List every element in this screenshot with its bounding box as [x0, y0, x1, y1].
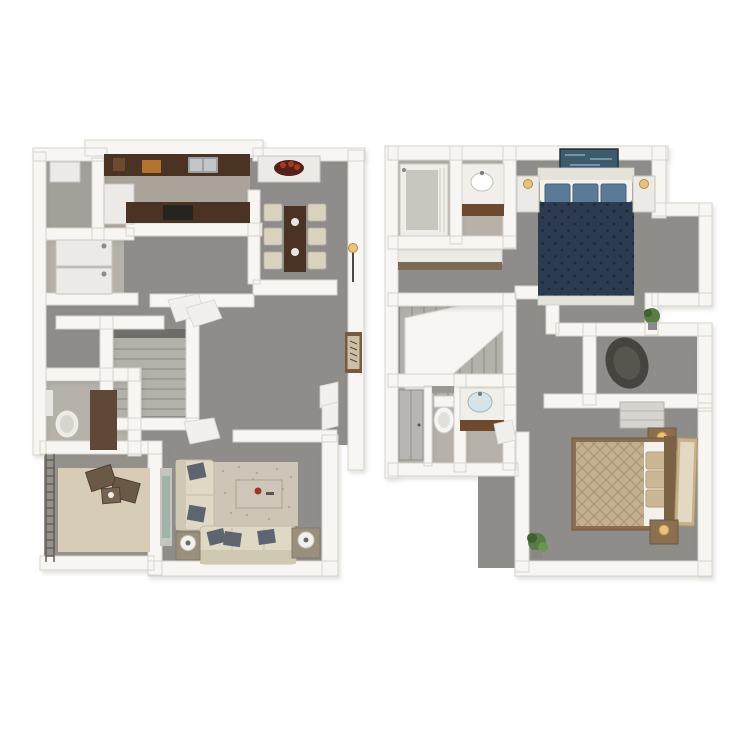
poster-paper	[348, 336, 360, 369]
closet-alcove-floor	[650, 212, 702, 294]
loveseat-back	[176, 460, 186, 530]
duvet-tufting	[538, 202, 634, 298]
fruit	[294, 164, 300, 170]
kitchen-counter	[104, 154, 250, 176]
linen-closet	[398, 250, 502, 270]
open-bedroom-door	[494, 420, 516, 444]
second-floor-plan	[385, 146, 712, 577]
pantry-cabinet	[50, 162, 80, 182]
duvet-lattice	[576, 442, 646, 526]
nightstand-lamp	[659, 525, 669, 535]
vanity-basin	[60, 415, 74, 433]
navy-pillow	[545, 184, 570, 203]
window-sill	[46, 390, 53, 416]
navy-pillow	[573, 184, 598, 203]
footboard	[538, 296, 634, 305]
fruit	[280, 162, 286, 168]
floorplan-canvas	[0, 0, 750, 750]
dining-chair	[308, 228, 326, 245]
faucet	[480, 171, 484, 175]
dining-chair	[264, 204, 282, 221]
floor-lamp	[349, 244, 358, 253]
open-entry-door	[322, 402, 338, 430]
bathroom-door	[90, 390, 117, 450]
shower-head	[402, 168, 406, 172]
dining-chair	[264, 228, 282, 245]
throw-pillow	[187, 505, 206, 523]
vanity-area	[462, 164, 504, 216]
fruit	[288, 161, 294, 167]
stacked-pillow	[646, 452, 666, 469]
closet-shelf-edge	[398, 262, 502, 270]
cutting-board	[142, 160, 161, 173]
toilet-tank	[434, 396, 454, 407]
plant-pot	[648, 322, 657, 330]
first-floor-plan	[33, 140, 365, 576]
washer-dial	[102, 244, 107, 249]
place-setting	[291, 218, 299, 226]
tv-screen	[162, 476, 170, 538]
nightstand-lamp	[524, 180, 533, 189]
dining-chair	[308, 252, 326, 269]
navy-pillow	[601, 184, 626, 203]
dining-table	[284, 206, 306, 272]
closet-shelf	[398, 250, 502, 264]
shower-handle	[418, 424, 421, 427]
place-setting	[291, 248, 299, 256]
patio	[46, 454, 150, 562]
stair-void	[113, 329, 186, 338]
plant-pot	[532, 550, 542, 559]
counter-item	[113, 158, 125, 171]
table-lamp-finial	[186, 541, 191, 546]
stacked-pillow	[646, 471, 666, 488]
master-bathroom	[400, 164, 448, 236]
dining-chair	[264, 252, 282, 269]
toilet-seat	[438, 412, 450, 428]
sink-basin-right	[204, 159, 216, 171]
vanity-cabinet	[462, 204, 504, 216]
plant-leaves	[527, 533, 537, 543]
table-lamp-finial	[304, 538, 309, 543]
dining-chair	[308, 204, 326, 221]
stacked-pillow	[646, 490, 666, 507]
dresser	[620, 402, 664, 428]
faucet	[478, 392, 482, 396]
sofa-back	[200, 550, 296, 564]
headboard	[664, 436, 676, 532]
bathtub-interior	[406, 170, 438, 230]
living-room	[160, 460, 320, 564]
leaning-art-canvas	[678, 442, 695, 522]
dryer-dial	[102, 272, 107, 277]
throw-pillow	[223, 531, 242, 547]
cooktop	[163, 205, 193, 220]
table-remote	[266, 492, 274, 495]
throw-pillow	[257, 529, 276, 545]
table-flowers	[255, 488, 262, 495]
plant-leaves	[644, 309, 652, 317]
towel-bar	[432, 386, 454, 393]
floorplan-rendering	[0, 0, 750, 750]
vanity-sink	[471, 173, 493, 191]
sink-basin-left	[190, 159, 202, 171]
patio-table-item	[108, 492, 114, 498]
headboard	[538, 168, 634, 182]
nightstand-lamp	[640, 180, 649, 189]
